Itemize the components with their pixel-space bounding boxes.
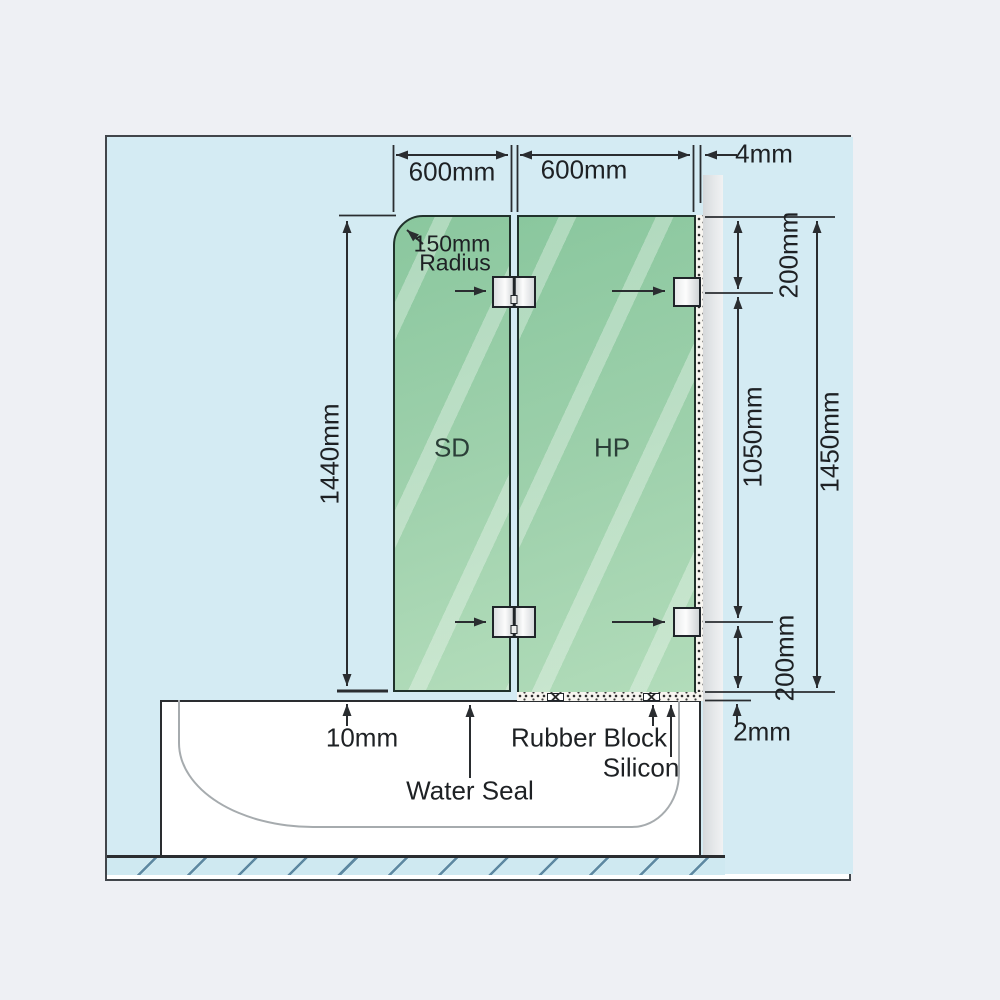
dim-label-radius-word: Radius [419,250,491,277]
dim-label-bottom-offset: 200mm [770,615,801,702]
panel-label-hp: HP [594,433,630,464]
hinge-notch [511,295,518,304]
silicon-bed-horizontal [517,692,703,701]
rubber-block-right [643,693,660,701]
hinge-bottom [492,606,536,638]
dim-label-top-offset: 200mm [774,212,805,299]
wall [703,175,723,857]
hinge-notch [511,625,518,634]
dim-label-door-gap: 10mm [326,723,398,754]
dim-label-fixed-gap: 2mm [733,717,791,748]
shower-screen-installation-diagram: 600mm 600mm 4mm 150mm Radius 1440mm 200m… [0,0,1000,1000]
floor-hatch [107,858,725,875]
wall-bracket-bottom [673,607,701,637]
callout-water-seal: Water Seal [406,776,534,807]
dim-label-width-right: 600mm [541,155,628,186]
panel-label-sd: SD [434,433,470,464]
dim-label-fixed-height: 1450mm [815,391,846,492]
hinge-top [492,276,536,308]
dim-label-wall-gap: 4mm [735,139,793,170]
dim-label-door-height: 1440mm [315,403,346,504]
dim-label-width-left: 600mm [409,157,496,188]
rubber-block-left [547,693,564,701]
callout-silicon: Silicon [603,753,680,784]
wall-bracket-top [673,277,701,307]
dim-label-bracket-spacing: 1050mm [738,386,769,487]
callout-rubber-block: Rubber Block [511,723,667,754]
